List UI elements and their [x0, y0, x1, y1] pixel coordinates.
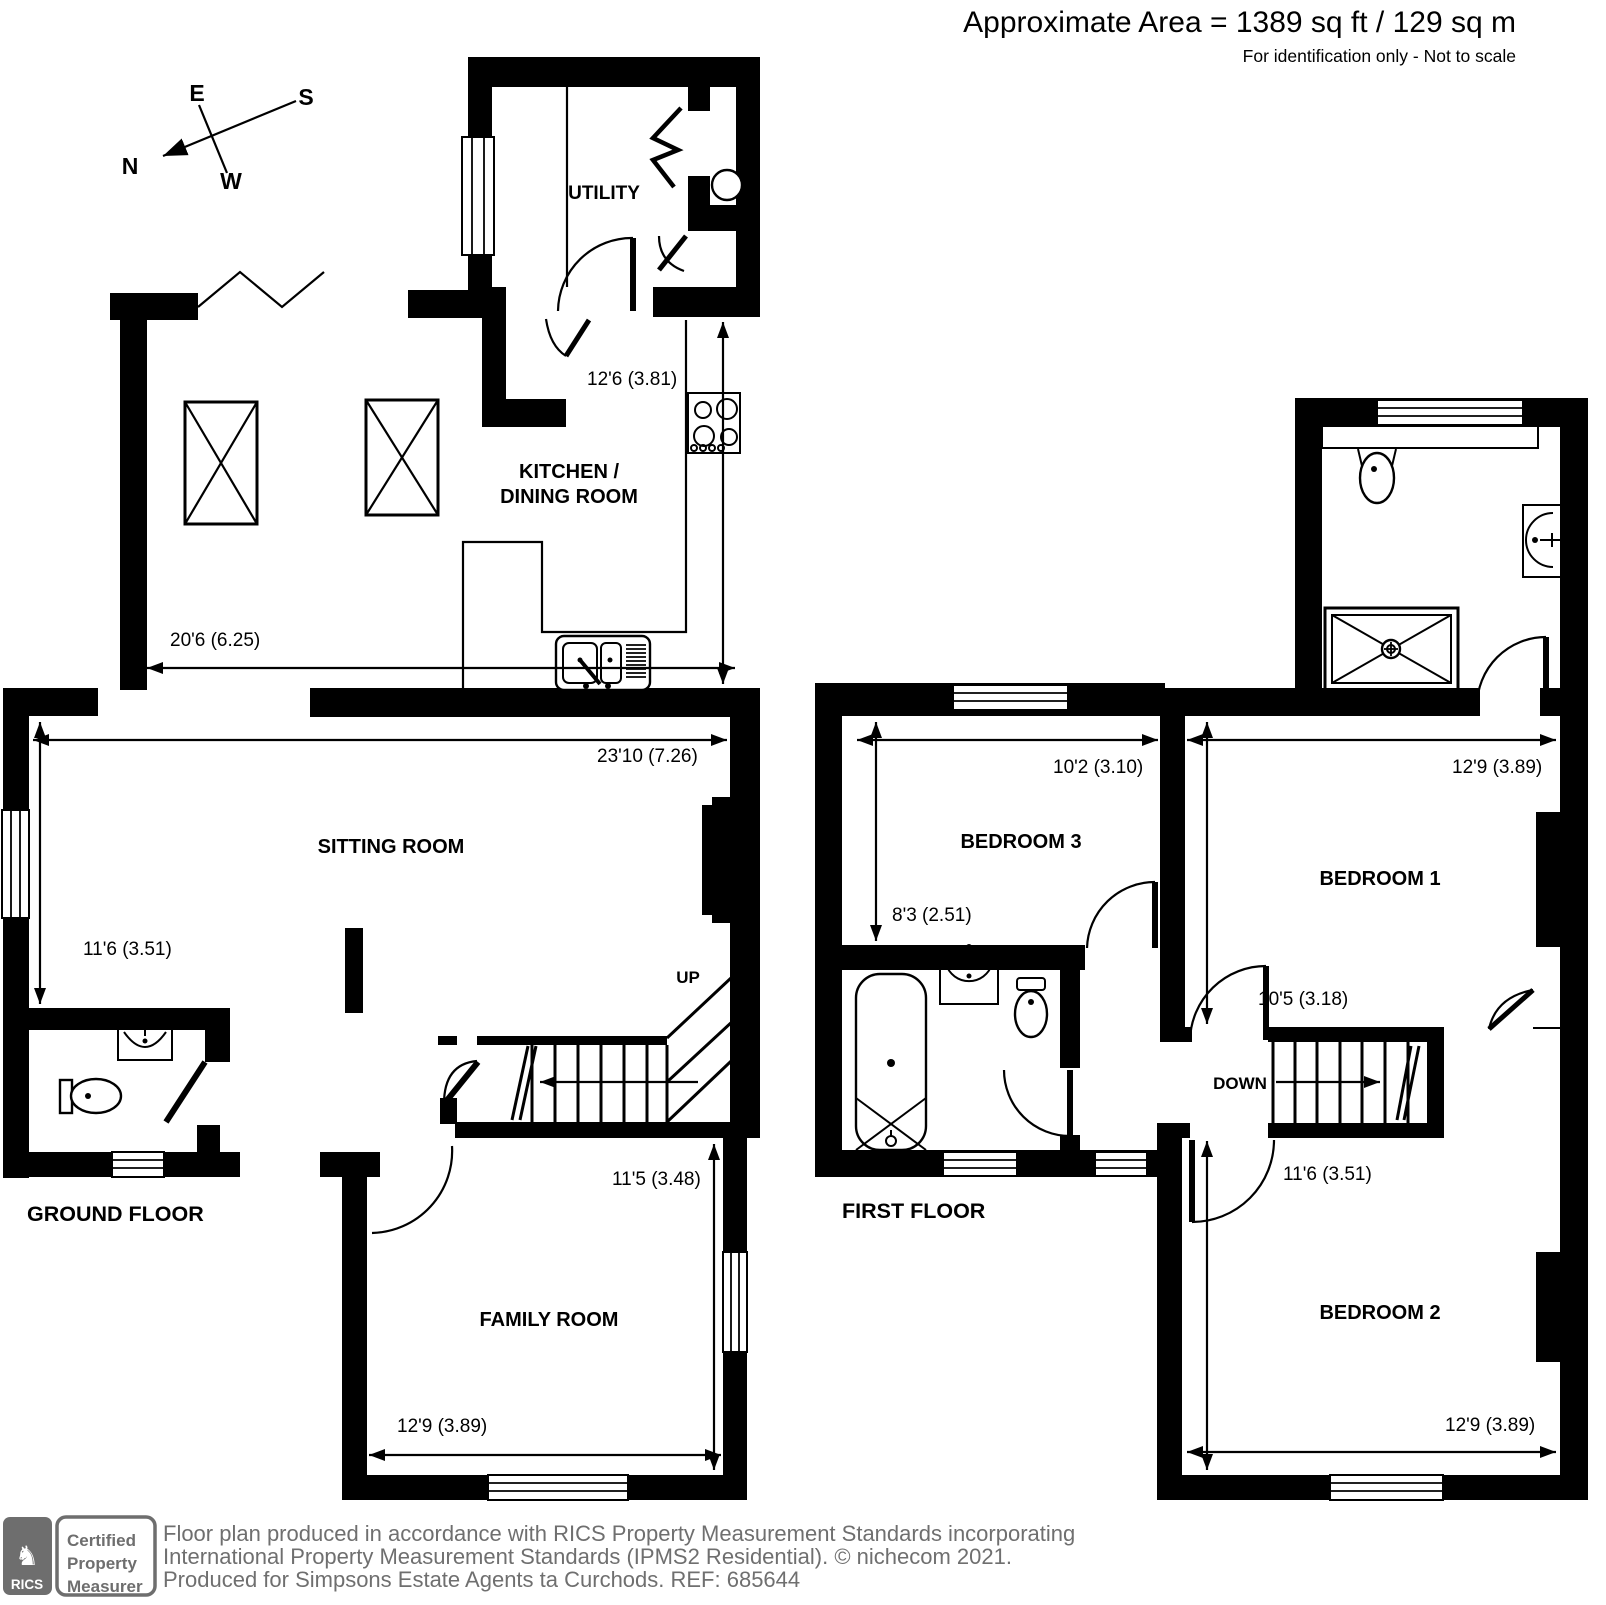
- stair-break-line: [512, 1046, 528, 1120]
- footer-line1: Floor plan produced in accordance with R…: [163, 1521, 1075, 1546]
- dim-sitting-width: 23'10 (7.26): [597, 746, 698, 767]
- footer-line2: International Property Measurement Stand…: [163, 1544, 1012, 1569]
- dim-family-width: 12'9 (3.89): [397, 1416, 487, 1437]
- ground-floor-title: GROUND FLOOR: [27, 1202, 204, 1226]
- rics-lion-icon: ♞: [15, 1541, 39, 1571]
- dim-bedroom3-height: 8'3 (2.51): [892, 905, 972, 926]
- door-leaf: [1489, 990, 1533, 1029]
- ground-floor-windows: [2, 137, 747, 1500]
- header: Approximate Area = 1389 sq ft / 129 sq m…: [963, 6, 1516, 66]
- family-room-label: FAMILY ROOM: [480, 1309, 619, 1331]
- badge-line2: Property: [67, 1554, 137, 1573]
- certified-property-measurer-badge: Certified Property Measurer: [57, 1517, 155, 1596]
- door-arc: [546, 319, 566, 356]
- compass-n-label: N: [122, 153, 139, 179]
- window-icon: [953, 685, 1068, 710]
- door-arc: [558, 238, 633, 311]
- compass-s-label: S: [298, 84, 313, 110]
- ground-floor-walls: [3, 57, 760, 1500]
- wc-toilet-icon: [60, 1079, 121, 1113]
- disclaimer-text: For identification only - Not to scale: [1243, 46, 1516, 66]
- stair-break-line: [520, 1046, 536, 1120]
- rics-logo: ♞ RICS: [3, 1517, 52, 1595]
- stairs-up-label: UP: [676, 968, 700, 987]
- footer-disclaimer-text: Floor plan produced in accordance with R…: [163, 1521, 1075, 1592]
- window-icon: [723, 1252, 747, 1352]
- toilet-icon: [1015, 978, 1047, 1037]
- window-icon: [943, 1152, 1017, 1176]
- approximate-area-text: Approximate Area = 1389 sq ft / 129 sq m: [963, 6, 1516, 39]
- dim-bedroom1-height: 10'5 (3.18): [1258, 989, 1348, 1010]
- door-arc: [372, 1146, 452, 1233]
- dim-bedroom1-width: 12'9 (3.89): [1452, 757, 1542, 778]
- shower-icon: [1325, 608, 1458, 690]
- rooflight-icon: [185, 402, 257, 524]
- window-icon: [1377, 400, 1523, 425]
- kitchen-label-line1: KITCHEN /: [519, 461, 619, 483]
- window-icon: [462, 137, 494, 255]
- floorplan-canvas: Approximate Area = 1389 sq ft / 129 sq m…: [0, 0, 1606, 1600]
- window-icon: [2, 810, 29, 918]
- utility-sink-icon: [712, 170, 742, 200]
- stair-break-line: [1404, 1046, 1419, 1120]
- footer: ♞ RICS Certified Property Measurer Floor…: [3, 1517, 1075, 1596]
- first-floor-plan: DOWN 10'2 (3.10) 8'3 (2.51) 12'9 (3.89) …: [815, 398, 1588, 1500]
- compass-needle: [163, 101, 296, 156]
- window-icon: [488, 1475, 628, 1500]
- stairs-down: DOWN: [1213, 1042, 1419, 1123]
- compass-w-label: W: [220, 168, 242, 194]
- stairs-down-label: DOWN: [1213, 1074, 1267, 1093]
- door-arc: [1192, 1140, 1274, 1222]
- door-arc: [1087, 882, 1155, 948]
- first-floor-title: FIRST FLOOR: [842, 1199, 986, 1223]
- toilet-icon: [1358, 449, 1396, 503]
- dim-kitchen-height: 12'6 (3.81): [587, 369, 677, 390]
- dim-sitting-height: 11'6 (3.51): [83, 939, 172, 960]
- footer-line3: Produced for Simpsons Estate Agents ta C…: [163, 1567, 800, 1592]
- sitting-room-label: SITTING ROOM: [318, 836, 465, 858]
- kitchen-label-line2: DINING ROOM: [500, 486, 638, 508]
- bifold-door-icon: [653, 108, 681, 187]
- wc-basin-icon: [118, 1022, 172, 1060]
- compass-e-label: E: [189, 80, 204, 106]
- utility-label: UTILITY: [568, 183, 640, 204]
- dim-bedroom2-height: 11'6 (3.51): [1283, 1164, 1372, 1185]
- rics-logo-text: RICS: [11, 1577, 43, 1592]
- door-leaf: [566, 320, 589, 356]
- hob-icon: [688, 393, 740, 453]
- bedroom3-label: BEDROOM 3: [960, 831, 1081, 853]
- bath-icon: [856, 974, 926, 1150]
- basin-icon: [1523, 505, 1562, 577]
- dim-bedroom3-width: 10'2 (3.10): [1053, 757, 1143, 778]
- door-arc: [1190, 966, 1266, 1040]
- wall-break-zigzag: [198, 272, 324, 307]
- window-icon: [1330, 1475, 1443, 1500]
- ground-floor-plan: UP 20'6 (6.25) 12'6 (3.81) 23'10 (7.26) …: [2, 57, 760, 1500]
- dim-family-height: 11'5 (3.48): [612, 1169, 701, 1190]
- badge-line3: Measurer: [67, 1577, 143, 1596]
- floorplan-page: Approximate Area = 1389 sq ft / 129 sq m…: [0, 0, 1606, 1600]
- door-leaf: [444, 1062, 478, 1104]
- window-icon: [1095, 1152, 1147, 1176]
- door-arc: [1477, 637, 1546, 706]
- bathroom-ledge: [1322, 425, 1538, 448]
- dim-bedroom2-width: 12'9 (3.89): [1445, 1415, 1535, 1436]
- badge-line1: Certified: [67, 1531, 136, 1550]
- door-leaf: [166, 1062, 205, 1122]
- compass-rose: E S N W: [122, 80, 314, 194]
- bedroom1-label: BEDROOM 1: [1319, 868, 1440, 890]
- bedroom2-label: BEDROOM 2: [1319, 1302, 1440, 1324]
- first-floor-walls: [815, 398, 1588, 1500]
- dim-kitchen-width: 20'6 (6.25): [170, 630, 260, 651]
- kitchen-sink-icon: [556, 636, 650, 690]
- rooflight-icon: [366, 400, 438, 515]
- door-arc: [1004, 1070, 1070, 1136]
- window-icon: [112, 1152, 164, 1177]
